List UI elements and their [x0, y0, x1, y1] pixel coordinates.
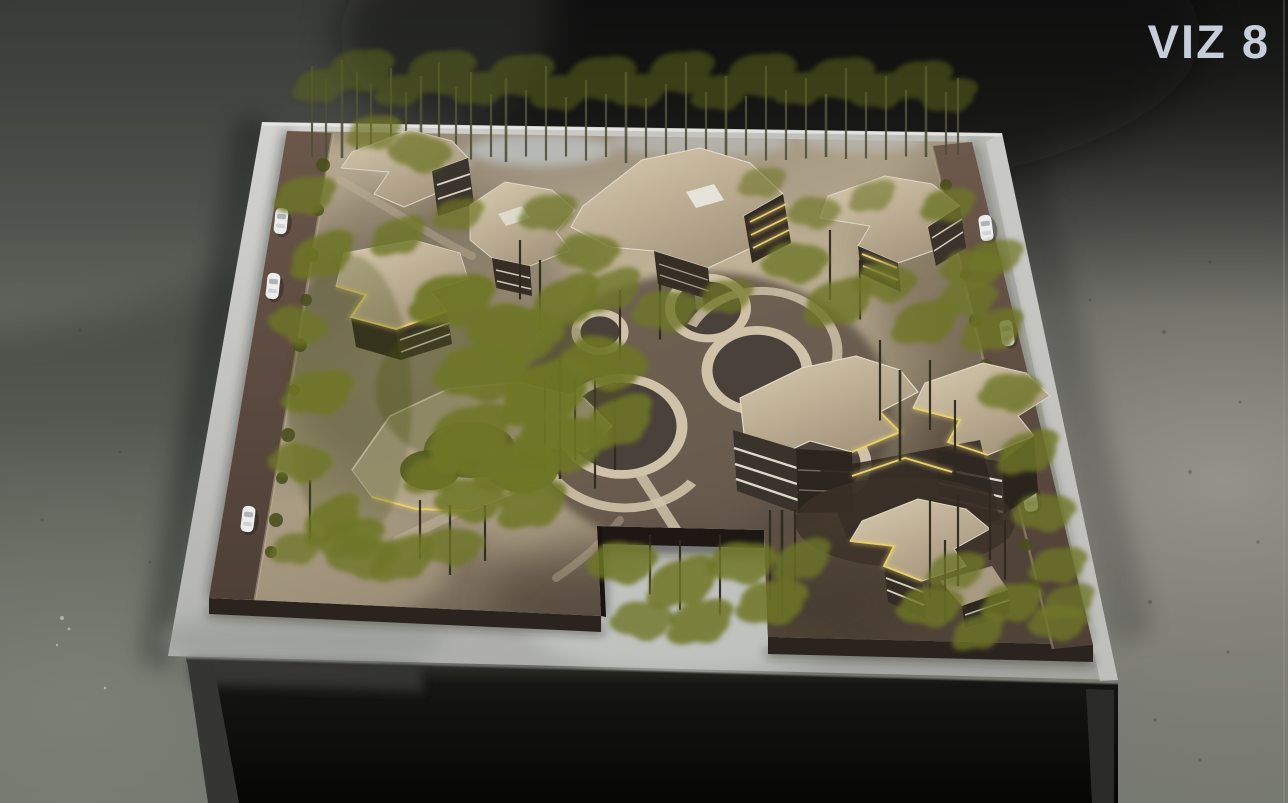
viz-watermark: VIZ 8	[1148, 15, 1270, 68]
screenshot-root: VIZ 8	[0, 0, 1288, 803]
architectural-model-render: VIZ 8	[0, 0, 1288, 803]
